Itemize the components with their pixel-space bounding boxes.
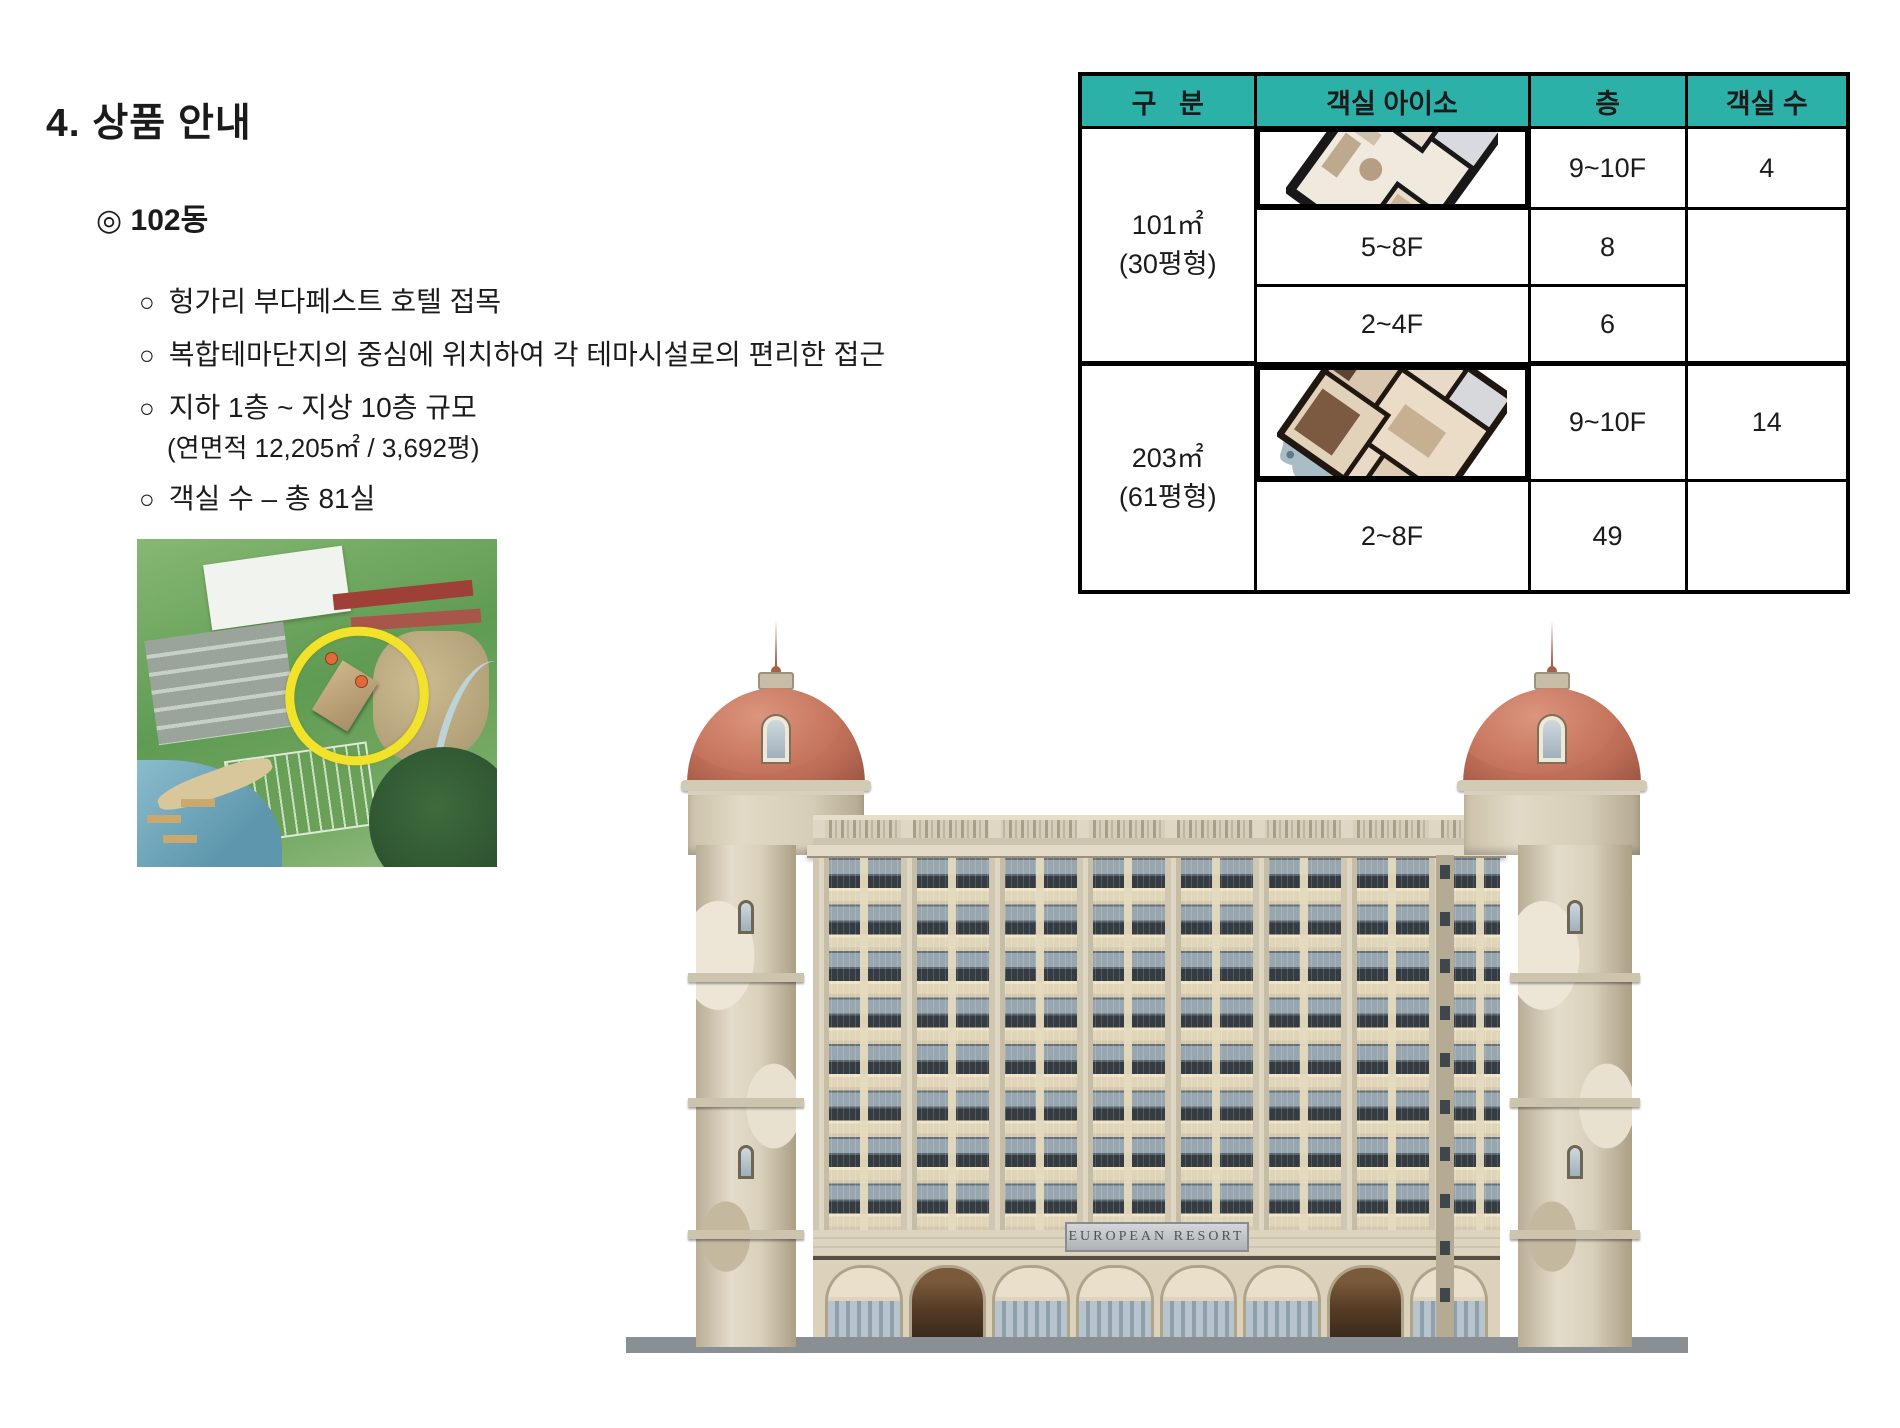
header-room-iso: 객실 아이소	[1255, 74, 1529, 128]
room-count: 49	[1529, 481, 1686, 593]
floor-range: 2~8F	[1255, 481, 1529, 593]
room-size: 101㎡	[1082, 206, 1254, 245]
joint-windows	[1440, 865, 1450, 1325]
floor-plan-203-icon	[1277, 365, 1507, 479]
header-room-count: 객실 수	[1686, 74, 1848, 128]
list-item: ○ 복합테마단지의 중심에 위치하여 각 테마시설로의 편리한 접근	[139, 333, 885, 373]
dome-window	[763, 716, 789, 762]
list-item: ○ 객실 수 – 총 81실	[139, 477, 375, 517]
arch-bay	[1243, 1265, 1321, 1337]
tower-cornice-band	[1510, 1098, 1640, 1107]
tower-window	[1567, 1145, 1583, 1179]
page-title: 4. 상품 안내	[46, 92, 252, 148]
floor-range: 9~10F	[1529, 364, 1686, 481]
arch-bay	[992, 1265, 1070, 1337]
room-pyeong: (30평형)	[1082, 245, 1254, 284]
bullet-text: 헝가리 부다페스트 호텔 접목	[169, 280, 501, 320]
main-facade: EUROPEAN RESORT	[813, 815, 1500, 1337]
area-note: (연면적 12,205㎡ / 3,692평)	[167, 428, 479, 465]
room-count: 8	[1529, 209, 1686, 286]
resort-sign: EUROPEAN RESORT	[1065, 1222, 1249, 1252]
forest	[369, 747, 497, 867]
window-grid	[813, 858, 1500, 1230]
bullet-text: 지하 1층 ~ 지상 10층 규모	[169, 386, 477, 426]
circle-bullet-icon: ○	[139, 484, 155, 515]
slide-canvas: 4. 상품 안내 ◎ 102동 ○ 헝가리 부다페스트 호텔 접목 ○ 복합테마…	[0, 0, 1900, 1428]
entrance-arch	[909, 1265, 987, 1337]
parking-lot	[144, 622, 297, 745]
room-pyeong: (61평형)	[1082, 478, 1254, 517]
bullet-text: 복합테마단지의 중심에 위치하여 각 테마시설로의 편리한 접근	[169, 333, 885, 373]
tower-cornice-band	[1510, 973, 1640, 982]
roof-cornice	[807, 845, 1506, 858]
header-floor: 층	[1529, 74, 1686, 128]
floor-plan-image-203	[1257, 365, 1528, 479]
floor-plan-101-icon	[1286, 129, 1498, 207]
list-item: ○ 지하 1층 ~ 지상 10층 규모	[139, 386, 477, 426]
table-row: 101㎡ (30평형)	[1080, 128, 1848, 209]
arch-bay	[825, 1265, 903, 1337]
floor-range: 5~8F	[1255, 209, 1529, 286]
tower-window	[738, 1145, 754, 1179]
dome-cornice	[1457, 780, 1647, 791]
pier	[147, 815, 181, 823]
roof-balustrade	[813, 815, 1500, 845]
floor-plan-image-101	[1257, 129, 1528, 207]
tower-facade-joint	[1436, 855, 1454, 1337]
circle-bullet-icon: ○	[139, 287, 155, 318]
tower-cornice-band	[688, 973, 804, 982]
circle-bullet-icon: ○	[139, 393, 155, 424]
bullet-text: 객실 수 – 총 81실	[169, 477, 376, 517]
room-size: 203㎡	[1082, 439, 1254, 478]
pier	[163, 835, 197, 843]
tower-cornice-band	[1510, 1230, 1640, 1239]
building-elevation-image: EUROPEAN RESORT	[618, 610, 1700, 1358]
aerial-map-image	[137, 539, 497, 867]
table-row: 203㎡ (61평형)	[1080, 364, 1848, 481]
arch-bay	[1160, 1265, 1238, 1337]
tower-cornice-band	[688, 1230, 804, 1239]
ground-arcade	[813, 1260, 1500, 1337]
floor-range: 9~10F	[1529, 128, 1686, 209]
room-count: 14	[1686, 364, 1848, 481]
white-building	[203, 546, 351, 631]
room-count: 6	[1529, 286, 1686, 364]
red-roof-buildings	[333, 580, 474, 611]
tower-cornice-band	[688, 1098, 804, 1107]
section-label-102: ◎ 102동	[96, 195, 208, 239]
tower-window	[738, 900, 754, 934]
size-cell-101: 101㎡ (30평형)	[1080, 128, 1255, 364]
right-tower	[1462, 620, 1642, 1353]
floor-range: 2~4F	[1255, 286, 1529, 364]
circle-bullet-icon: ○	[139, 340, 155, 371]
size-cell-203: 203㎡ (61평형)	[1080, 364, 1255, 593]
header-gubun: 구 분	[1080, 74, 1255, 128]
list-item: ○ 헝가리 부다페스트 호텔 접목	[139, 280, 501, 320]
arch-bay	[1076, 1265, 1154, 1337]
table-header-row: 구 분 객실 아이소 층 객실 수	[1080, 74, 1848, 128]
dome-cornice	[681, 780, 871, 791]
tower-window	[1567, 900, 1583, 934]
entrance-arch	[1327, 1265, 1405, 1337]
room-count: 4	[1686, 128, 1848, 209]
dome-window	[1539, 716, 1565, 762]
resort-sign-text: EUROPEAN RESORT	[1068, 1229, 1244, 1245]
room-type-table: 구 분 객실 아이소 층 객실 수 101㎡ (30평형)	[1078, 72, 1850, 594]
pier	[181, 799, 215, 807]
